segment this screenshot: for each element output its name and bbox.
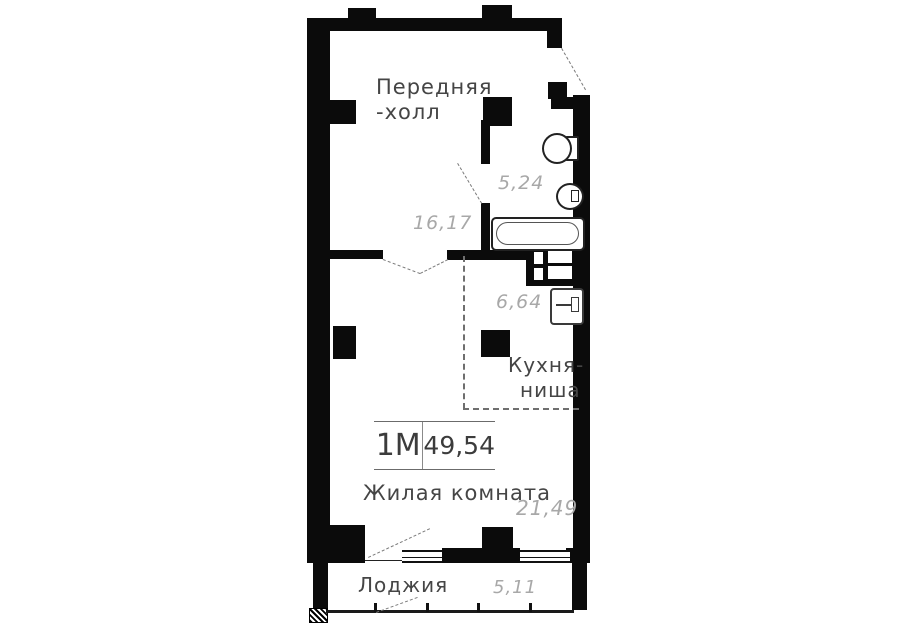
loggia-glazing	[326, 610, 574, 613]
bottom-wall-corner-left	[330, 525, 365, 563]
hall-label: Передняя	[376, 75, 492, 99]
bottom-wall-mid	[442, 548, 520, 563]
bathtub-icon	[496, 222, 579, 245]
entrance-jamb-upper	[547, 18, 562, 48]
kitchen-sink-icon	[571, 297, 579, 312]
kitchen-label: Кухня-	[508, 353, 584, 377]
floor-plan: Передняя -холл 16,17 5,24 6,64 Кухня- ни…	[0, 0, 900, 623]
top-wall-pilaster	[482, 5, 512, 19]
bathroom-top-wall	[551, 97, 590, 109]
apartment-type-label: 1М	[374, 428, 422, 463]
hall-living-divider	[330, 250, 383, 259]
bathroom-left-wall	[481, 120, 490, 164]
hall-opening-mark-dash	[420, 259, 448, 274]
vent-shaft-cell	[548, 266, 572, 279]
loggia-wall-right	[572, 563, 587, 610]
hall-label: -холл	[376, 100, 441, 124]
bathroom-left-wall	[481, 203, 490, 253]
exterior-wall-top	[307, 18, 560, 31]
hall-area: 16,17	[413, 212, 472, 234]
top-wall-pilaster	[348, 8, 376, 19]
kitchen-niche-boundary-dash	[463, 408, 579, 410]
loggia-label: Лоджия	[358, 573, 448, 597]
vent-shaft-cell	[534, 252, 543, 264]
bathroom-area: 5,24	[498, 172, 544, 194]
kitchen-label: ниша	[520, 378, 581, 402]
living-room-area: 21,49	[516, 496, 578, 520]
loggia-area: 5,11	[493, 577, 537, 598]
kitchen-niche-boundary-dash	[463, 256, 465, 409]
bathroom-door-swing-dash	[457, 163, 482, 204]
vent-shaft-cell	[548, 251, 572, 263]
sink-icon	[556, 183, 584, 210]
bottom-wall-pilaster	[482, 527, 513, 549]
balcony-door-threshold	[365, 560, 402, 561]
glazing-mullion-tick	[477, 603, 480, 612]
exterior-wall-right	[573, 95, 590, 563]
kitchen-area: 6,64	[496, 291, 542, 313]
window	[402, 550, 442, 563]
vent-shaft-cell	[534, 268, 543, 280]
exterior-wall-left	[307, 18, 330, 563]
apartment-total-area: 49,54	[422, 422, 495, 469]
toilet-icon	[542, 133, 572, 164]
window	[520, 550, 570, 563]
column	[481, 330, 510, 357]
apartment-title-block: 1М 49,54	[374, 421, 495, 470]
column	[333, 326, 356, 359]
loggia-wall-left	[313, 563, 328, 611]
glazing-mullion-tick	[529, 603, 532, 612]
glazing-mullion-tick	[426, 603, 429, 612]
hall-wall-pilaster	[330, 100, 356, 124]
sink-icon	[571, 190, 579, 202]
vent-shaft	[526, 246, 575, 286]
hall-opening-mark-dash	[383, 259, 421, 274]
